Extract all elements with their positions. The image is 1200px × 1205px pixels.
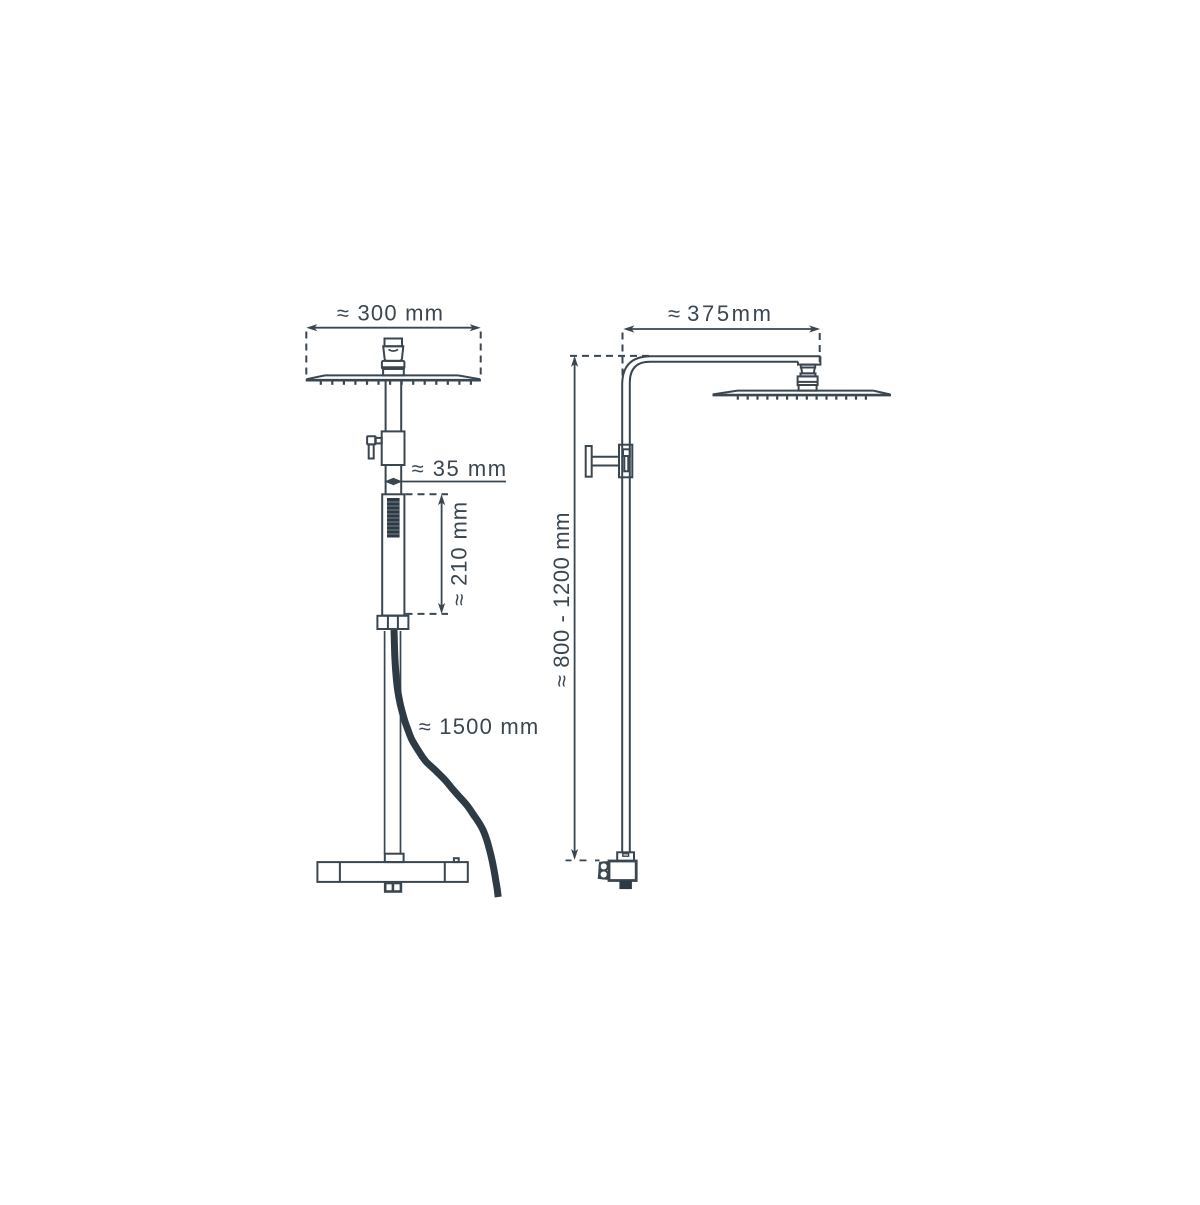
svg-text:≈ 35 mm: ≈ 35 mm	[412, 456, 508, 481]
svg-text:≈ 300 mm: ≈ 300 mm	[337, 300, 444, 325]
svg-text:≈ 210 mm: ≈ 210 mm	[447, 501, 472, 606]
svg-text:≈ 800 - 1200 mm: ≈ 800 - 1200 mm	[549, 512, 574, 687]
svg-text:≈ 1500 mm: ≈ 1500 mm	[419, 714, 540, 739]
svg-text:≈ 375mm: ≈ 375mm	[668, 301, 773, 326]
